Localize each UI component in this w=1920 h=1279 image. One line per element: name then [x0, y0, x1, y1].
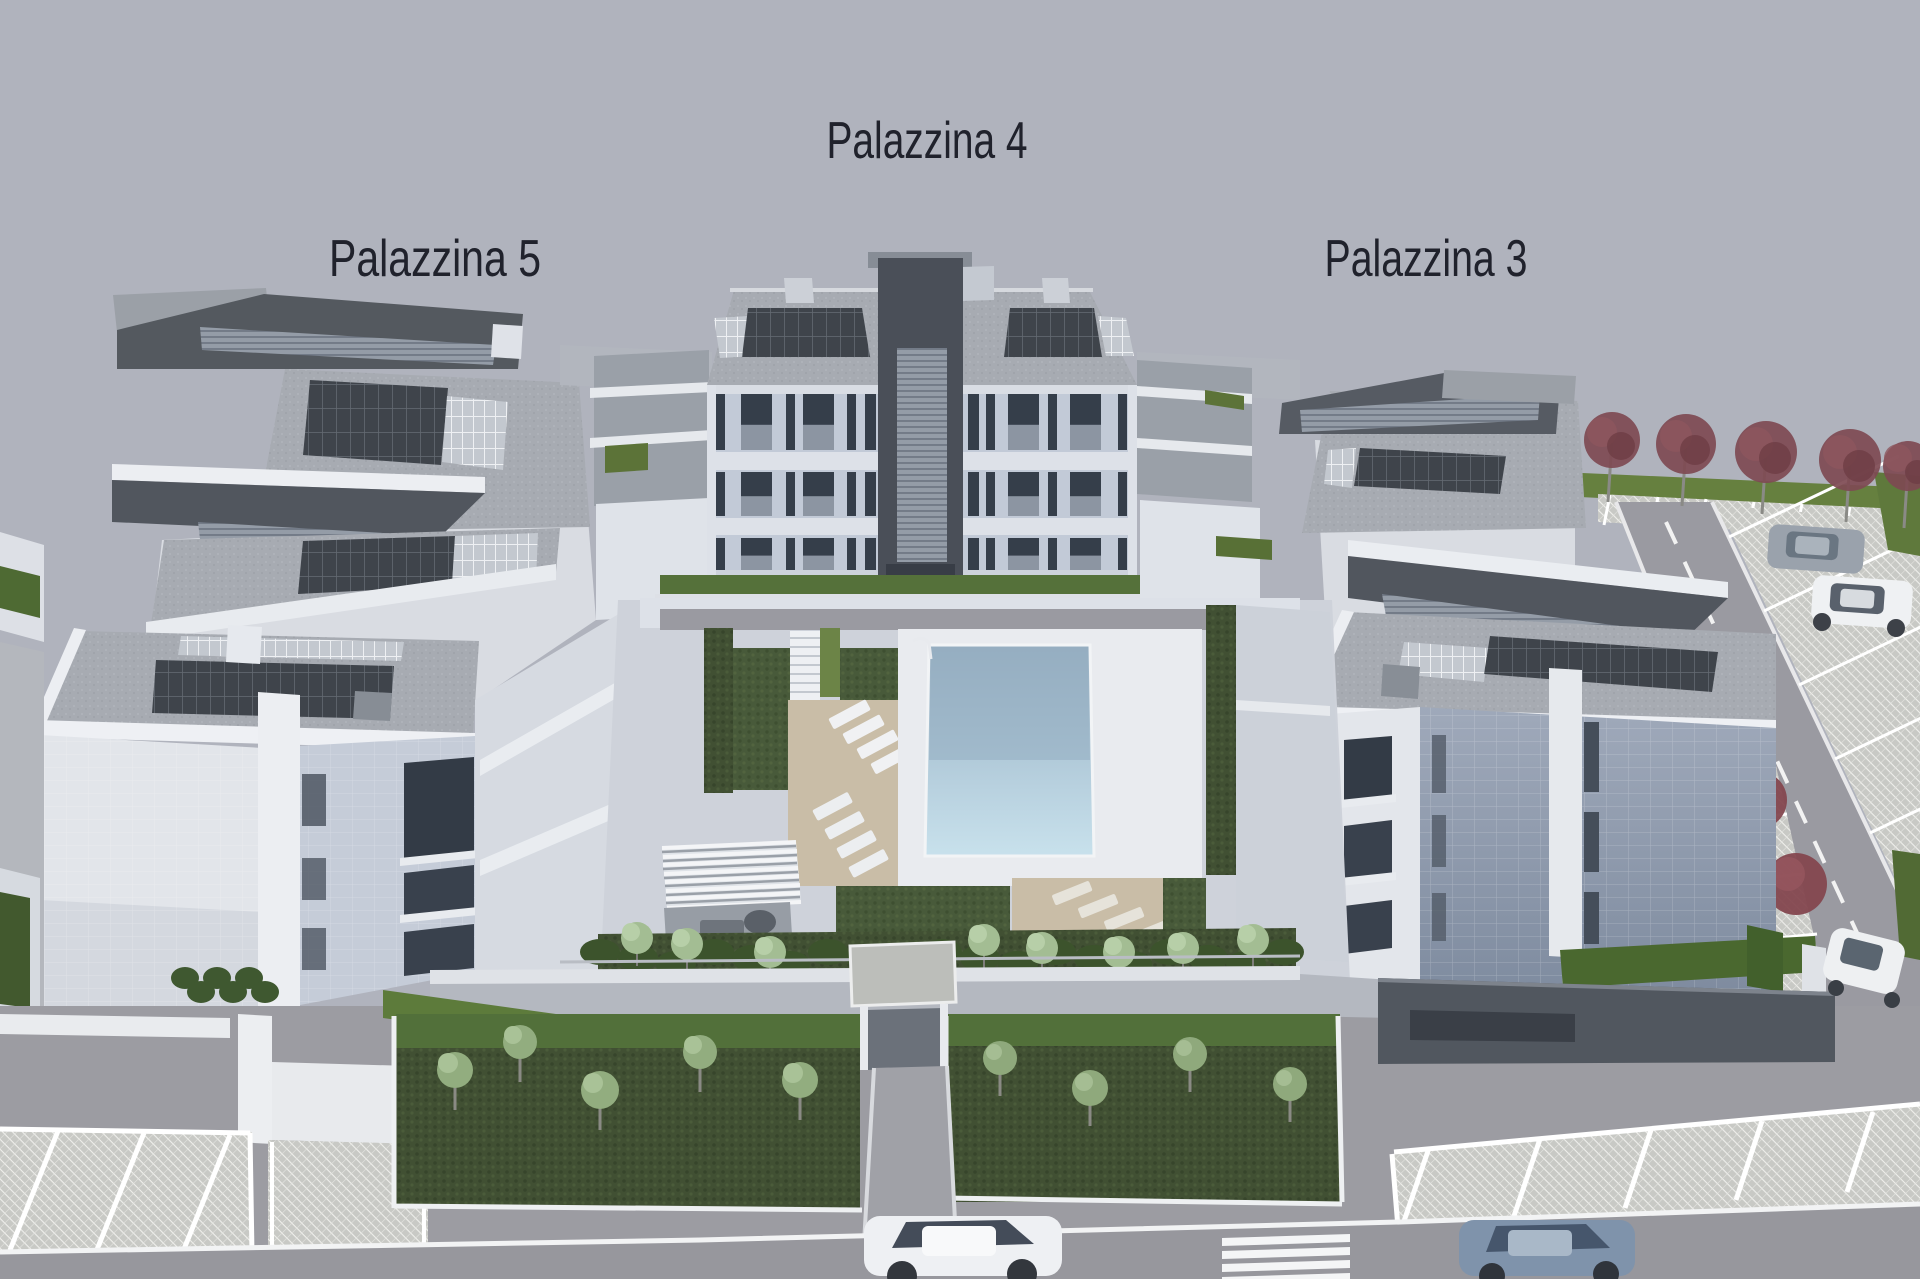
- svg-text:Palazzina 3: Palazzina 3: [1325, 230, 1528, 288]
- svg-text:Palazzina 4: Palazzina 4: [827, 112, 1028, 170]
- svg-text:Palazzina 5: Palazzina 5: [329, 230, 541, 288]
